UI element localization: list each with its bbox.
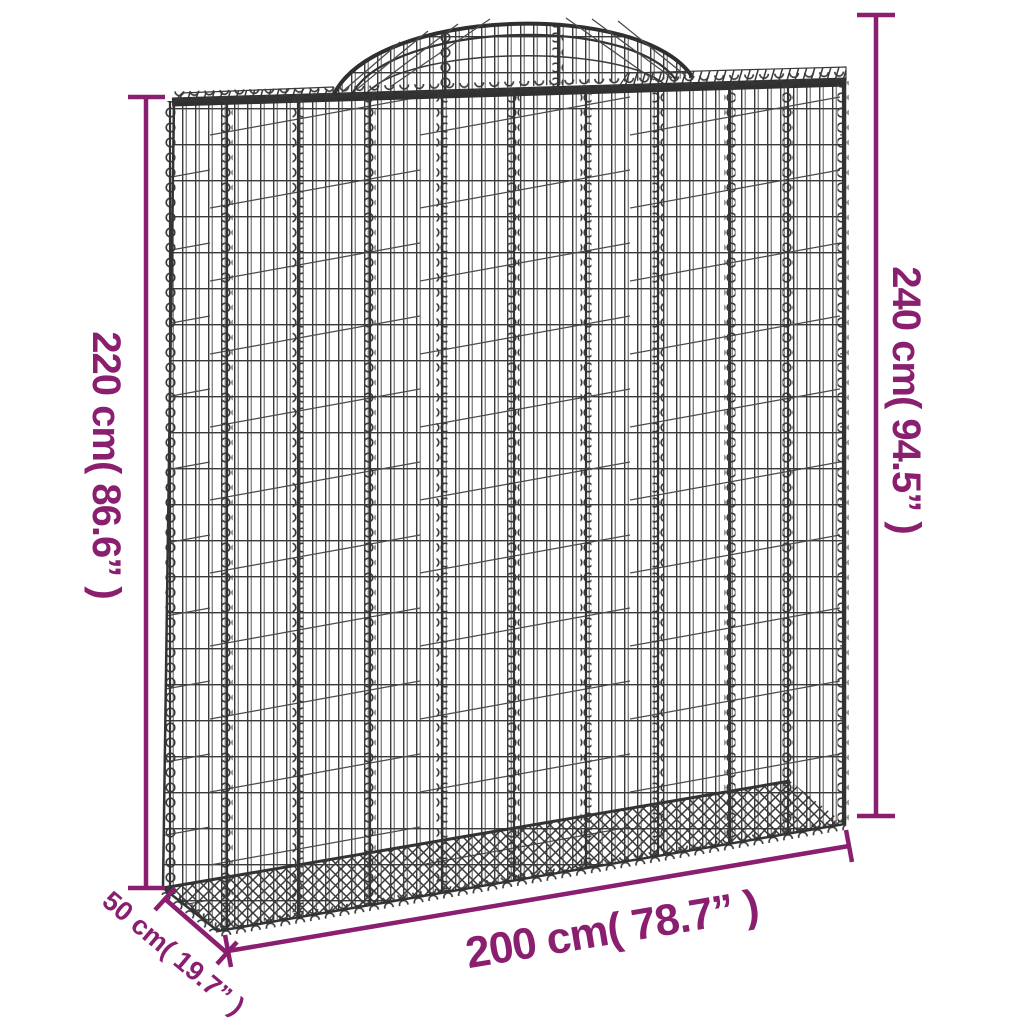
gabion-wireframe-graphic xyxy=(0,0,1024,1024)
dimension-line-height-left xyxy=(128,97,165,888)
label-height-left: 220 cm( 86.6” ) xyxy=(84,295,128,635)
product-dimension-diagram: 220 cm( 86.6” ) 240 cm( 94.5” ) 200 cm( … xyxy=(0,0,1024,1024)
label-height-right: 240 cm( 94.5” ) xyxy=(884,230,928,570)
